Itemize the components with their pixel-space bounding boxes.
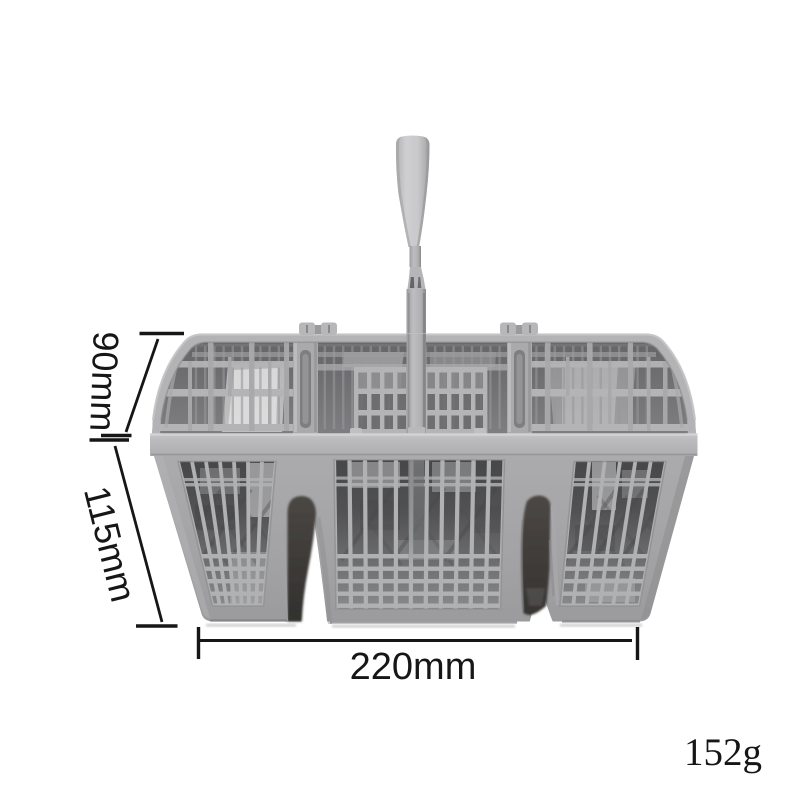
svg-text:90mm: 90mm xyxy=(82,331,126,432)
svg-text:220mm: 220mm xyxy=(350,646,477,688)
svg-text:152g: 152g xyxy=(684,731,762,774)
svg-text:115mm: 115mm xyxy=(76,482,144,606)
